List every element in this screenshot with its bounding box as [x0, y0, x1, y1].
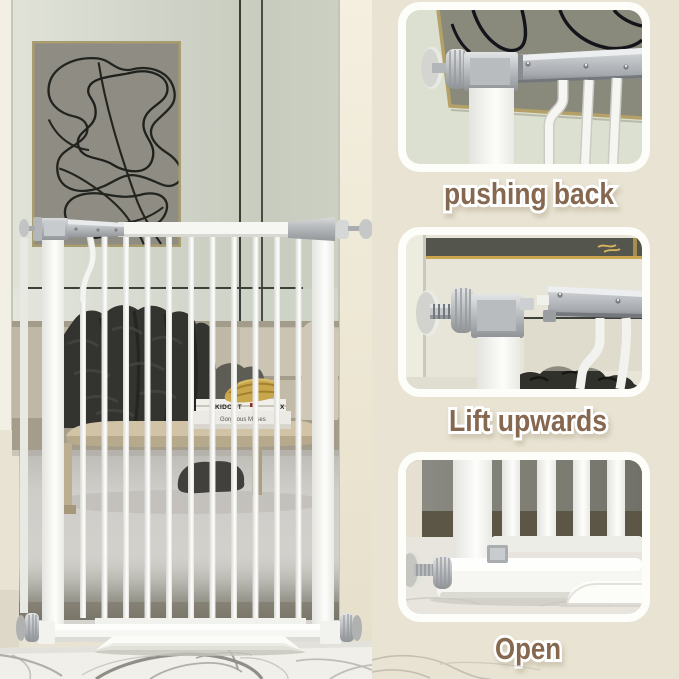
svg-text:Lift upwards: Lift upwards: [449, 403, 607, 438]
svg-text:X: X: [280, 404, 285, 411]
svg-text:Gorgeous Muses: Gorgeous Muses: [220, 417, 266, 423]
svg-text:Open: Open: [495, 631, 561, 666]
svg-text:pushing back: pushing back: [444, 176, 615, 211]
